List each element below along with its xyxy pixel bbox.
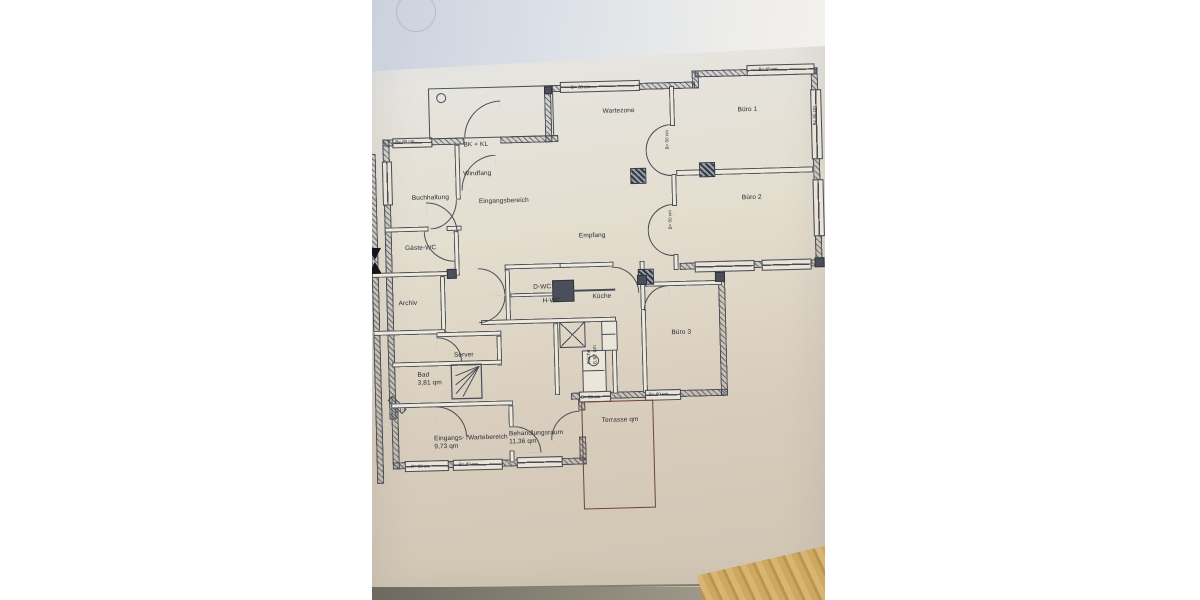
pillar [716,273,724,281]
room-label-server: Server [454,351,474,360]
interior-wall [669,86,675,126]
wall [718,269,728,396]
interior-wall [508,405,514,427]
window [382,161,393,205]
interior-wall [505,263,562,269]
dimension-label: B= 80 cm [395,139,414,144]
interior-wall [671,174,677,206]
interior-wall [641,309,648,393]
pillar [638,276,646,284]
interior-wall [373,329,445,336]
wall [391,405,400,469]
room-label-archiv: Archiv [398,300,417,309]
door-arc [435,406,467,438]
dimension-label: B= 80 cm [812,106,817,125]
kitchen-unit [601,321,618,351]
pillar [631,169,645,183]
section-marker-icon [372,248,382,274]
kitchen-appliance-box [559,321,586,348]
dimension-label: B= 80 cm [649,391,668,396]
room-label-windfang: Windfang [463,170,491,179]
dimension-label: B= 80 cm [571,84,590,89]
window [812,179,824,236]
room-label-bad: Bad3,81 qm [417,371,442,388]
room-label-kueche-klein: Küche6,62 qm [586,345,599,364]
interior-wall [391,400,513,408]
interior-wall [481,317,616,326]
interior-wall [560,262,614,268]
floor-plan-drawing: BK + KL Windfang Buchhaltung Eingangsber… [372,0,825,600]
interior-wall [673,254,678,270]
door-arc [643,285,669,311]
dimension-label: B= 80 cm [459,461,478,466]
room-label-h-wc: H-WC [542,297,560,306]
window [746,63,814,76]
room-label-kueche: Küche [592,293,611,302]
dimension-label: B= 50 cm [667,210,672,229]
interior-wall [676,166,813,176]
dimension-label: B= 80 cm [411,464,430,469]
room-label-empfang: Empfang [579,232,606,241]
interior-wall [645,280,722,287]
pillar [448,270,456,278]
room-label-behandlungsraum: Behandlungsraum11,36 qm [509,429,564,447]
room-label-buero-1: Büro 1 [738,106,758,115]
counter-line [573,289,615,292]
interior-wall [436,331,501,338]
room-label-gaeste-wc: Gäste-WC [405,244,436,253]
room-label-bk-kl: BK + KL [463,141,488,150]
dimension-label: B= 50 cm [664,130,669,149]
pillar [700,163,714,176]
room-label-eingangs-wartebereich: Eingangs- /Wartebereich9,73 qm [434,433,508,451]
room-label-wartezone: Wartezone [602,107,634,116]
room-label-buero-3: Büro 3 [671,329,691,338]
door-arc [478,267,506,295]
interior-wall [440,276,446,333]
window [695,260,755,273]
pillar [816,258,824,266]
room-label-buero-2: Büro 2 [742,194,762,203]
window [762,258,812,270]
floor-plan-photo: BK + KL Windfang Buchhaltung Eingangsber… [372,0,825,600]
window [517,456,563,468]
room-label-terrasse: Terrasse qm [602,416,639,425]
closet-outline [428,85,554,139]
room-label-eingangsbereich: Eingangsbereich [479,197,529,206]
interior-wall [454,145,460,200]
dimension-label: B= 80 cm [581,394,600,399]
interior-wall [385,226,429,232]
interior-wall [372,271,450,278]
dimension-label: B= 80 cm [758,66,777,71]
room-label-buchhaltung: Buchhaltung [412,194,449,203]
shower-icon [450,363,483,400]
door-arc [612,266,640,294]
room-label-d-wc: D-WC [533,283,551,292]
